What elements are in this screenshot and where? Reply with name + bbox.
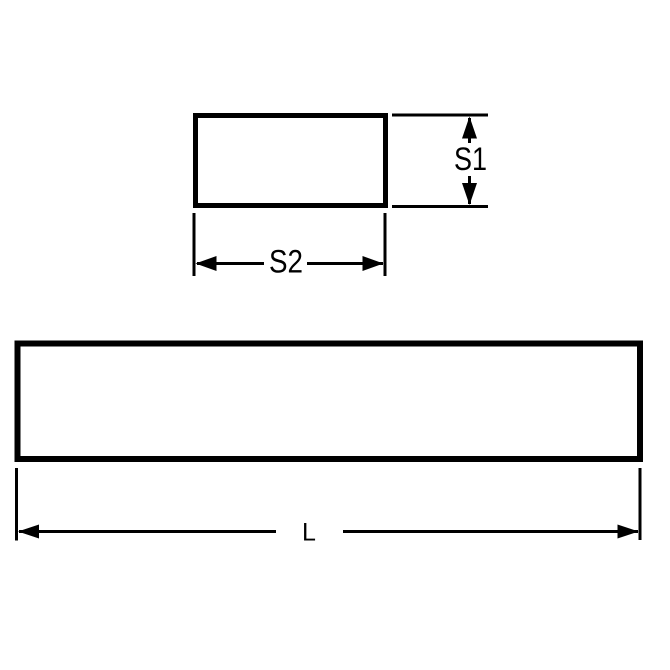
s2-left-arrowhead-icon: [196, 256, 217, 271]
l-right-arrowhead-icon: [618, 525, 639, 539]
drawing-canvas: S1 S2 L: [0, 0, 670, 670]
s1-up-arrowhead-icon: [462, 117, 477, 139]
s2-right-arrowhead-icon: [363, 256, 384, 271]
s1-label: S1: [454, 141, 487, 177]
keystock-technical-drawing: S1 S2 L: [0, 0, 670, 670]
l-label: L: [302, 519, 316, 547]
side-view-rectangle: [18, 344, 641, 460]
cross-section-rectangle: [196, 116, 386, 206]
s1-down-arrowhead-icon: [462, 183, 477, 205]
s2-label: S2: [269, 244, 303, 280]
l-left-arrowhead-icon: [18, 525, 39, 539]
